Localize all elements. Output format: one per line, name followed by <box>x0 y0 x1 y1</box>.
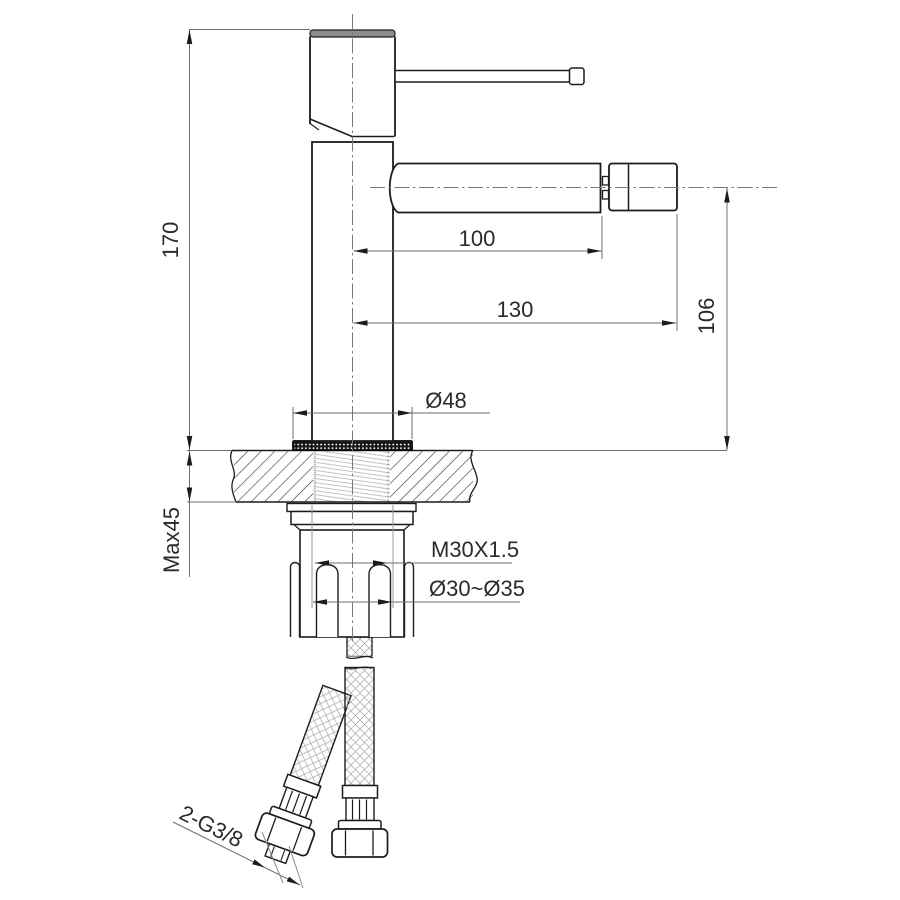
mounting-hardware <box>287 504 416 638</box>
label-reach-130: 130 <box>497 297 534 322</box>
countertop-right <box>390 452 473 502</box>
hose-collar-vertical <box>339 821 382 830</box>
aerator-connector-top <box>603 177 609 186</box>
label-reach-100: 100 <box>459 226 496 251</box>
nut-wing-left <box>291 563 300 638</box>
hose-stub-vertical <box>347 637 372 657</box>
lever-end-cap <box>570 68 585 85</box>
technical-drawing: 170 Max45 100 130 106 Ø48 M30X1.5 Ø30~Ø3… <box>0 0 900 900</box>
hose-braid-vertical <box>345 668 374 786</box>
label-thread-m30: M30X1.5 <box>431 537 519 562</box>
lever-handle <box>395 71 572 83</box>
label-hole-range: Ø30~Ø35 <box>429 576 525 601</box>
label-height-170: 170 <box>158 222 183 259</box>
nut-wing-right <box>405 563 414 638</box>
hose-nut-vertical <box>332 829 388 857</box>
label-max45: Max45 <box>159 507 184 573</box>
shank-washer <box>287 504 416 512</box>
hose-ferrule-vertical <box>343 786 378 799</box>
threaded-shank-section <box>313 452 390 502</box>
label-diameter-48: Ø48 <box>425 388 467 413</box>
label-height-106: 106 <box>694 298 719 335</box>
aerator-connector-bottom <box>603 191 609 200</box>
countertop-left <box>234 452 313 502</box>
deck-section <box>231 441 478 503</box>
